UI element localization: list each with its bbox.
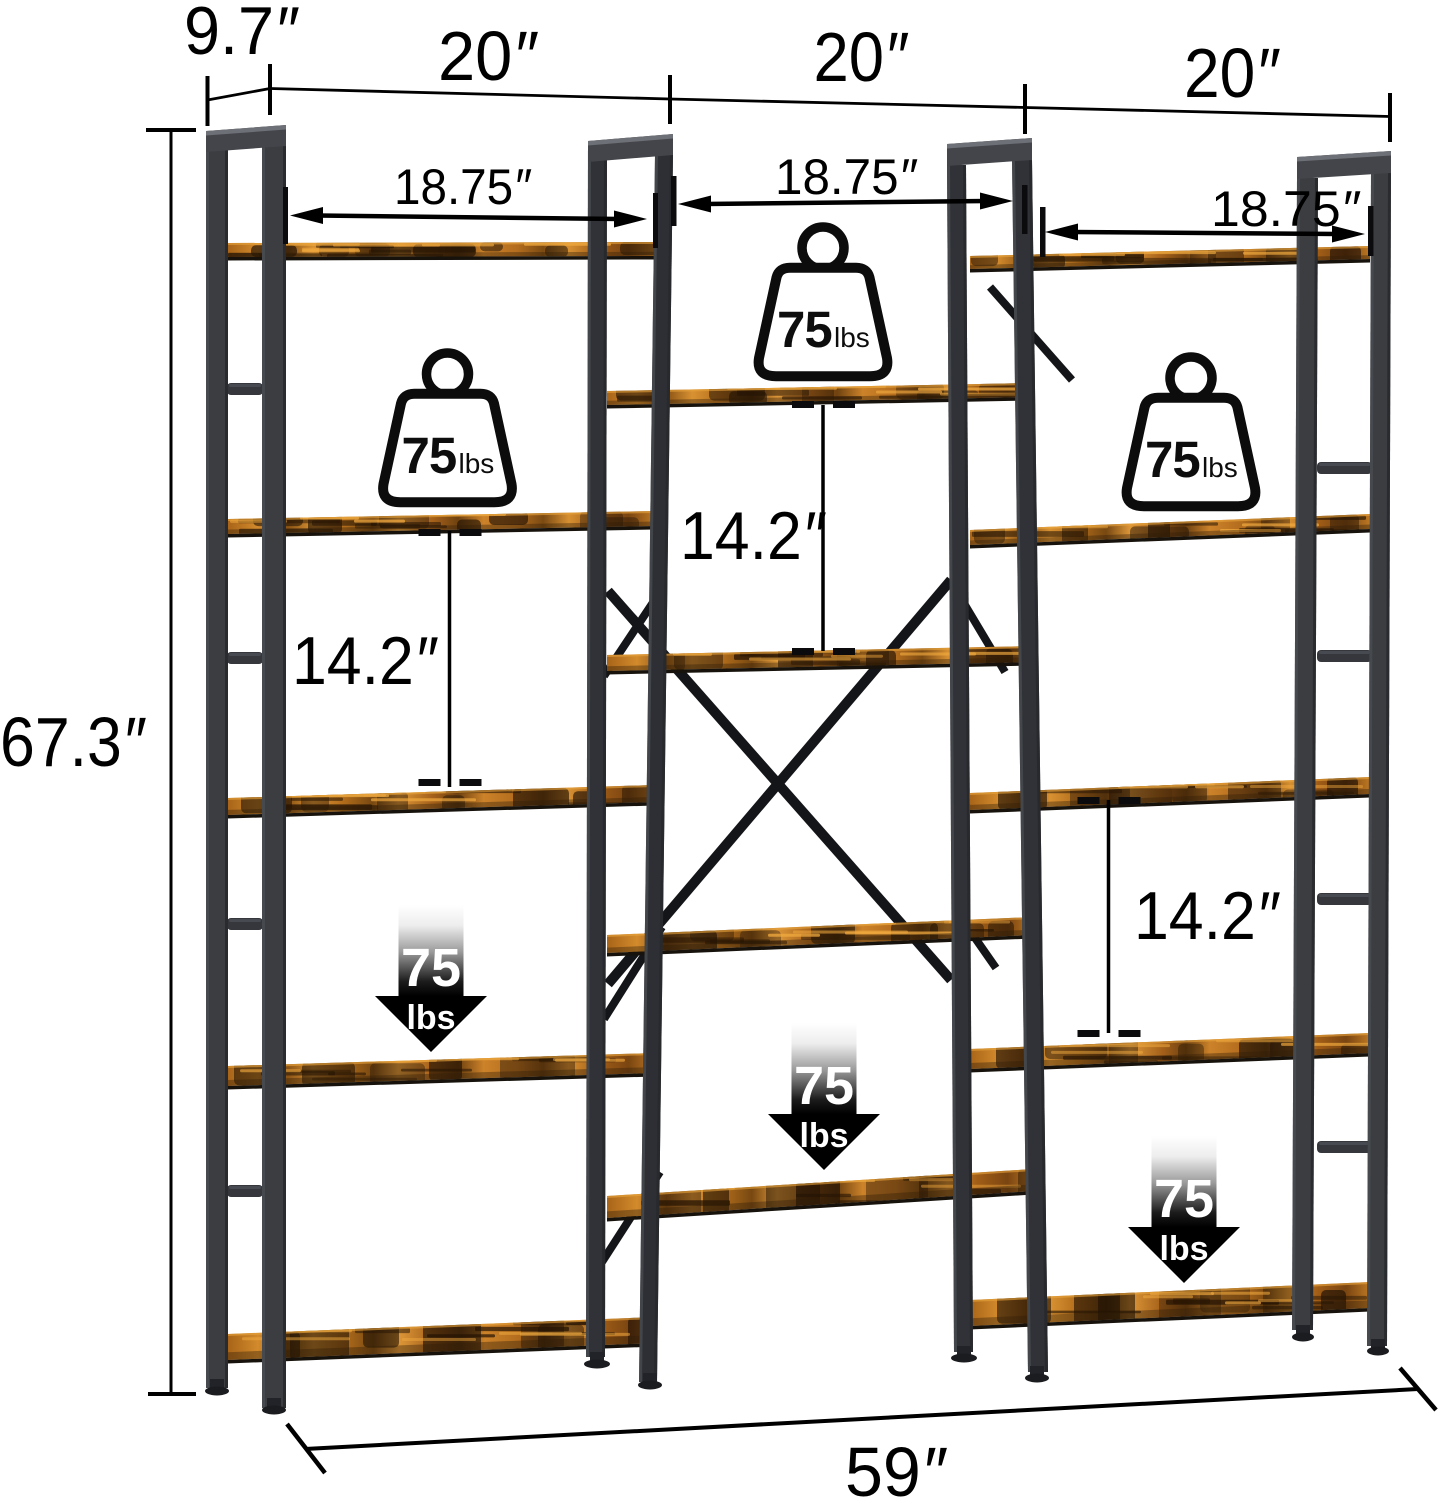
svg-text:14.2″: 14.2″ bbox=[292, 623, 438, 699]
svg-text:67.3″: 67.3″ bbox=[0, 703, 146, 781]
svg-text:18.75″: 18.75″ bbox=[394, 159, 532, 215]
svg-text:59″: 59″ bbox=[845, 1433, 947, 1500]
svg-text:9.7″: 9.7″ bbox=[184, 0, 299, 69]
svg-text:20″: 20″ bbox=[814, 18, 909, 96]
svg-text:14.2″: 14.2″ bbox=[1134, 878, 1280, 954]
svg-text:18.75″: 18.75″ bbox=[775, 149, 918, 205]
svg-text:18.75″: 18.75″ bbox=[1211, 181, 1361, 237]
svg-text:14.2″: 14.2″ bbox=[680, 498, 826, 574]
svg-text:20″: 20″ bbox=[1184, 34, 1280, 112]
svg-text:20″: 20″ bbox=[438, 17, 538, 95]
